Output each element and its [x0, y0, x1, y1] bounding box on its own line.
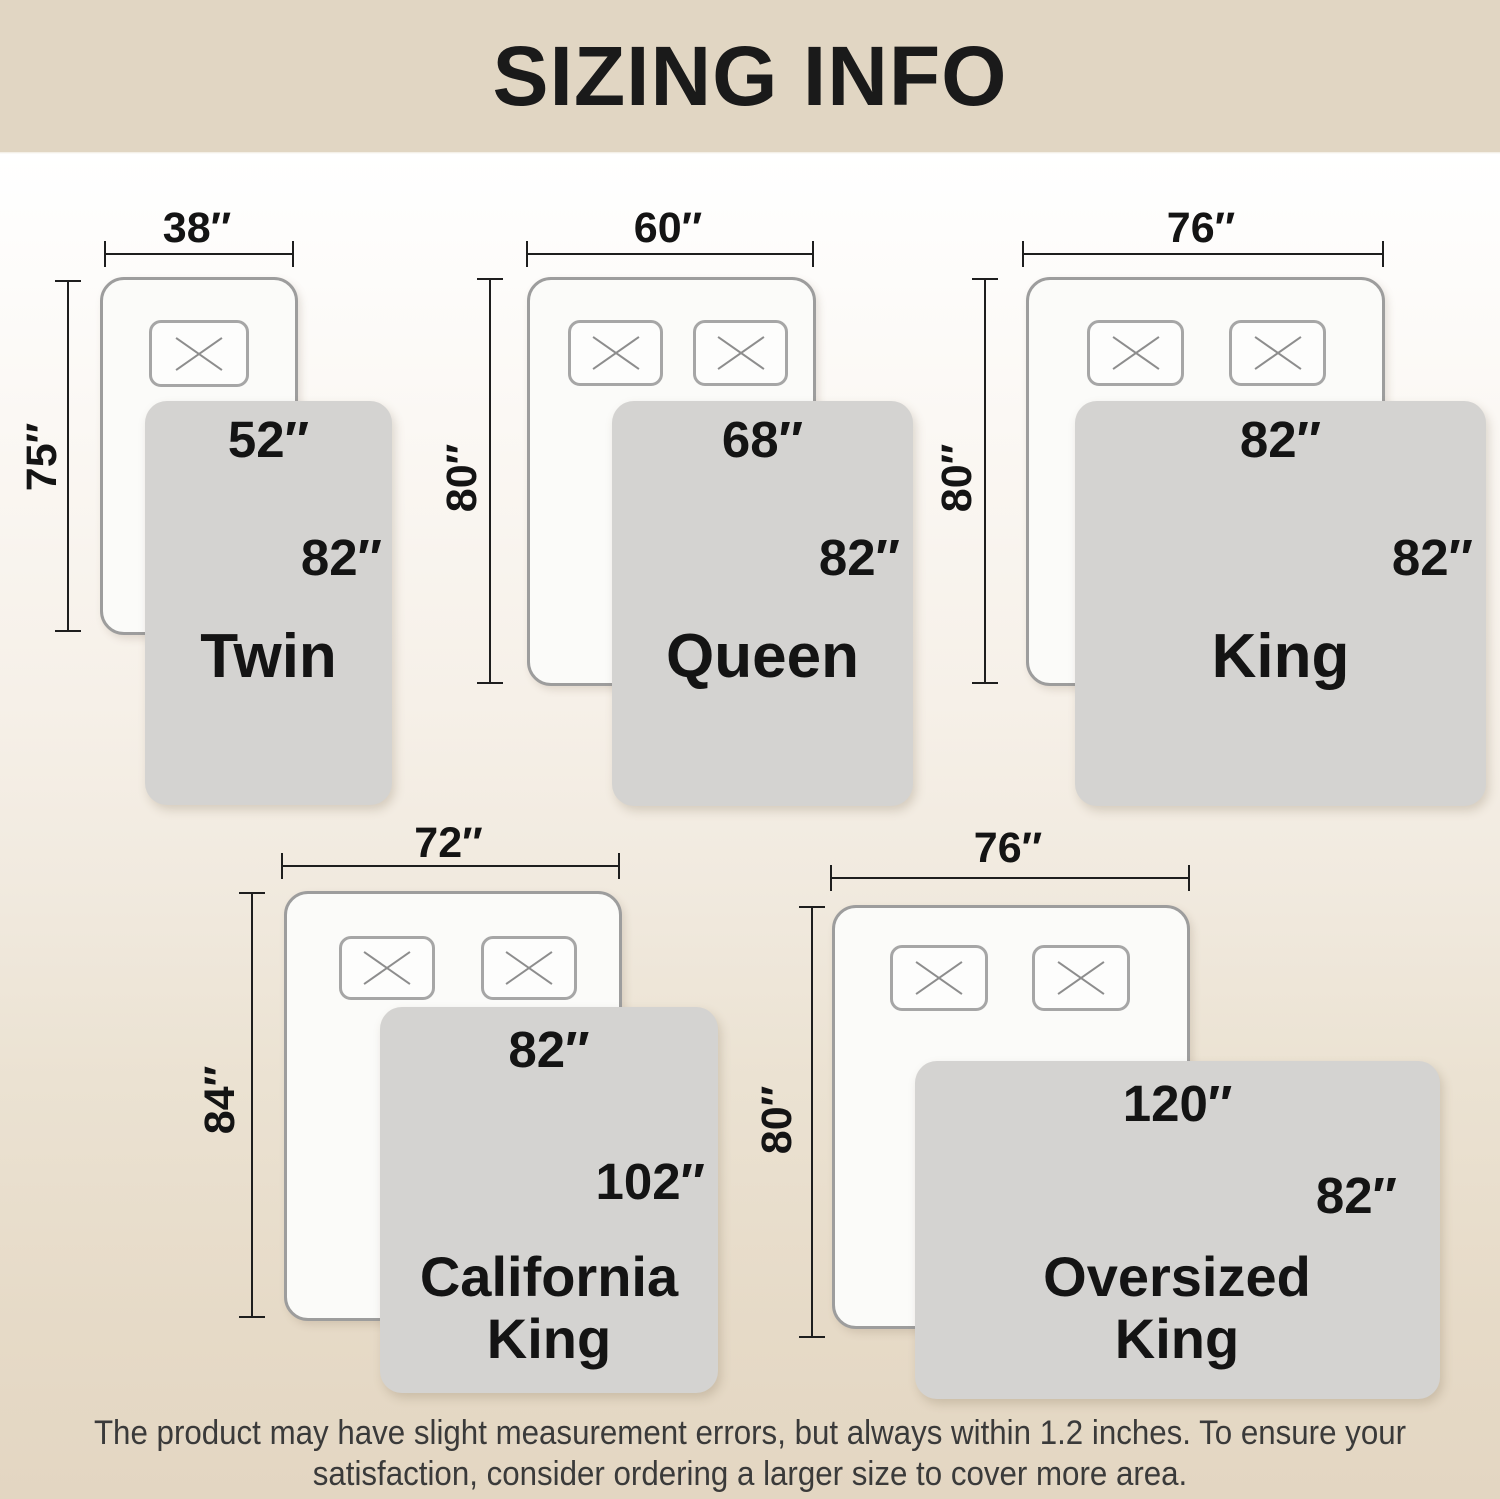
blanket-length-label: 102″: [380, 1152, 705, 1211]
pillow: [1032, 945, 1130, 1011]
length-dimension-line: [55, 280, 81, 632]
blanket-width-label: 82″: [1075, 410, 1486, 469]
width-dimension-line: [526, 241, 814, 267]
bed-length-label: 80″: [754, 1045, 800, 1195]
blanket-length-label: 82″: [145, 528, 382, 587]
blanket-width-label: 120″: [915, 1074, 1440, 1133]
size-name: California King: [399, 1246, 699, 1370]
header-band: SIZING INFO: [0, 0, 1500, 152]
pillow-x-icon: [571, 323, 660, 383]
blanket-width-label: 52″: [145, 410, 392, 469]
pillow: [1229, 320, 1326, 386]
pillow-x-icon: [342, 939, 432, 997]
length-dimension-line: [239, 892, 265, 1318]
disclaimer-line-2: satisfaction, consider ordering a larger…: [60, 1454, 1440, 1495]
width-dimension-line: [830, 865, 1190, 891]
blanket-length-label: 82″: [1075, 528, 1473, 587]
pillow: [481, 936, 577, 1000]
blanket-width-label: 68″: [612, 410, 913, 469]
blanket-length-label: 82″: [915, 1166, 1397, 1225]
pillow-x-icon: [152, 323, 246, 384]
pillow-x-icon: [1090, 323, 1181, 383]
pillow: [1087, 320, 1184, 386]
size-name: Queen: [612, 624, 913, 690]
size-name: Oversized King: [1027, 1246, 1327, 1370]
blanket-length-label: 82″: [612, 528, 900, 587]
pillow-x-icon: [893, 948, 985, 1008]
width-dimension-line: [281, 853, 620, 879]
disclaimer-line-1: The product may have slight measurement …: [60, 1413, 1440, 1454]
pillow: [890, 945, 988, 1011]
bed-length-label: 84″: [197, 1025, 243, 1175]
pillow: [339, 936, 435, 1000]
pillow-x-icon: [1232, 323, 1323, 383]
width-dimension-line: [104, 241, 294, 267]
disclaimer-text: The product may have slight measurement …: [60, 1413, 1440, 1495]
length-dimension-line: [972, 278, 998, 684]
blanket-width-label: 82″: [380, 1020, 718, 1079]
pillow: [693, 320, 788, 386]
width-dimension-line: [1022, 241, 1384, 267]
length-dimension-line: [477, 278, 503, 684]
pillow-x-icon: [1035, 948, 1127, 1008]
size-name: Twin: [145, 624, 392, 690]
pillow-x-icon: [696, 323, 785, 383]
pillow: [568, 320, 663, 386]
pillow-x-icon: [484, 939, 574, 997]
length-dimension-line: [799, 906, 825, 1338]
size-name: King: [1075, 624, 1486, 690]
page-title: SIZING INFO: [493, 28, 1008, 125]
sizing-chart: SIZING INFO 38″ 75″ 52″ 82″ Twin 60″ 80″…: [0, 0, 1500, 1499]
pillow: [149, 320, 249, 387]
